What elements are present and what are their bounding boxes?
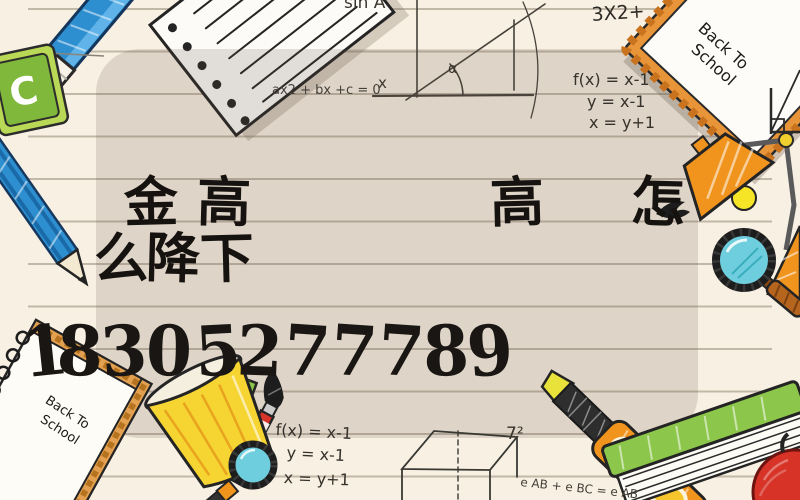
phone-digit: 8 [56,316,104,387]
phone-digit: 3 [99,315,150,387]
phone-digit: 2 [236,316,284,387]
phone-digit: 7 [329,315,380,387]
phone-digit: 8 [422,316,470,387]
phone-digit: 9 [464,314,516,387]
phone-digit: 7 [282,315,333,387]
phone-number: 18305277789 [0,0,800,500]
phone-digit: 7 [376,315,427,387]
phone-digit: 0 [145,316,192,386]
poster-canvas: sin Axαax2 + bx +c = 03X2+f(x) = x-1y = … [0,0,800,500]
